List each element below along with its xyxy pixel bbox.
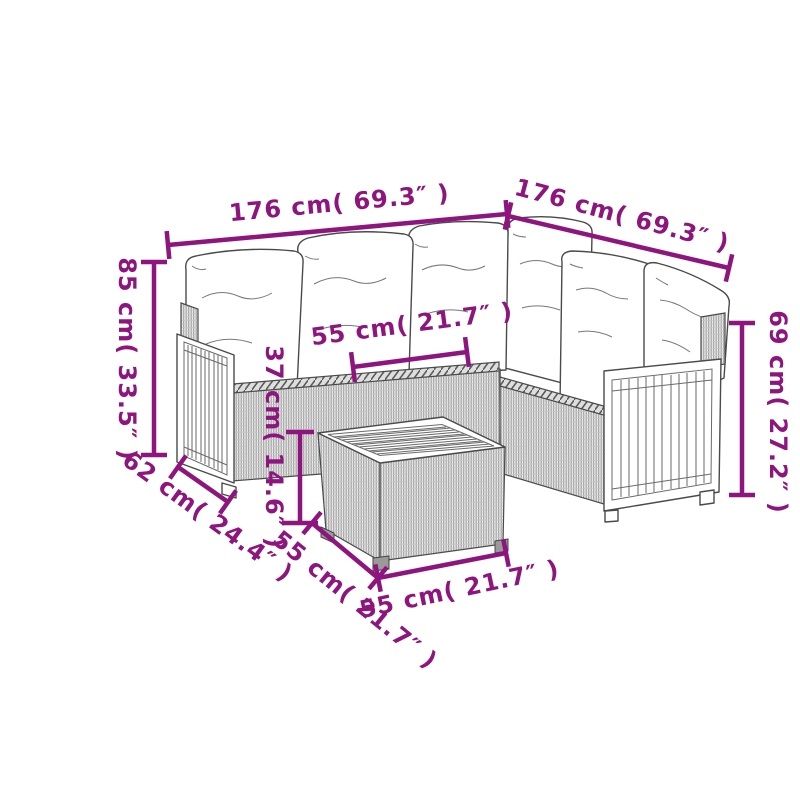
armrest-foot <box>700 490 714 505</box>
product-dimension-diagram: 176 cm( 69.3″ ) 176 cm( 69.3″ ) 85 cm( 3… <box>0 0 800 800</box>
dimension-backrest-height: 85 cm( 33.5″ ) <box>113 257 167 461</box>
armrest-panel-right <box>604 359 721 522</box>
dimension-armrest-height: 69 cm( 27.2″ ) <box>729 310 792 514</box>
coffee-table <box>318 417 508 571</box>
table-side-right <box>380 447 505 561</box>
dimension-line <box>729 323 755 495</box>
dimension-label: 37 cm( 14.6″ ) <box>260 345 288 549</box>
dimension-label: 85 cm( 33.5″ ) <box>113 257 141 461</box>
diagram-canvas: 176 cm( 69.3″ ) 176 cm( 69.3″ ) 85 cm( 3… <box>0 0 800 800</box>
armrest-foot <box>605 510 618 522</box>
dimension-label: 69 cm( 27.2″ ) <box>764 310 792 514</box>
dimension-line <box>141 262 167 455</box>
